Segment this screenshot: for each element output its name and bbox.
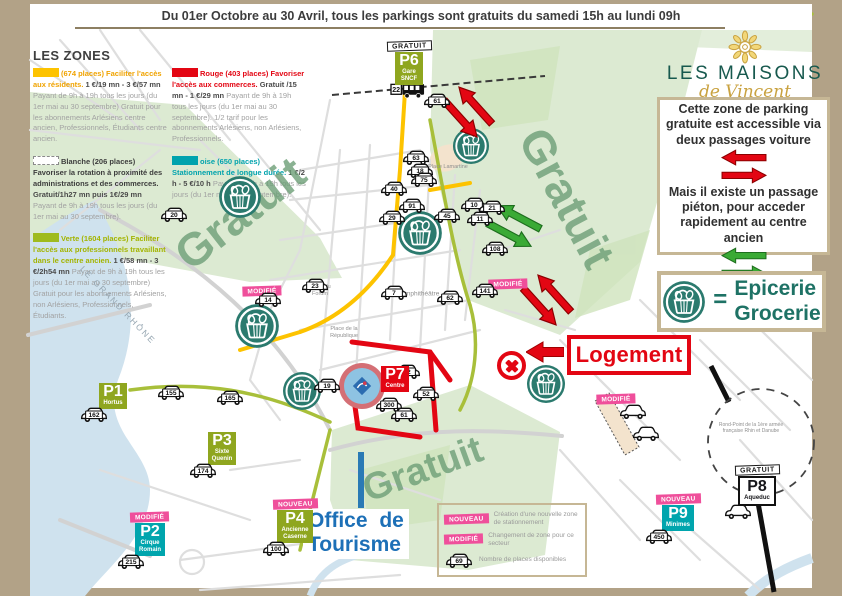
parking-map-page: Du 01er Octobre au 30 Avril, tous les pa… [0,0,842,596]
svg-text:23: 23 [311,283,319,290]
svg-text:45: 45 [443,213,451,220]
svg-text:162: 162 [88,412,99,419]
svg-text:19: 19 [323,383,331,390]
svg-text:7: 7 [392,290,396,297]
parking-marker-p6: GRATUITP6GareSNCF [383,34,435,85]
svg-text:155: 155 [165,390,176,397]
grocery-basket-icon [234,303,280,349]
street-label: LE GRAND RHÔNE [78,264,158,346]
svg-text:91: 91 [408,203,416,210]
svg-text:450: 450 [653,534,664,541]
car-count-badge: 61 [389,406,419,423]
car-count-badge: 40 [379,180,409,197]
car-count-badge: 11 [465,210,495,227]
car-count-badge: 23 [300,277,330,294]
car-count-badge: 108 [480,240,510,257]
car-count-badge [618,403,648,420]
svg-text:40: 40 [390,186,398,193]
svg-text:108: 108 [489,246,500,253]
parking-marker-p9: NOUVEAUP9Minimes 450 [652,487,704,545]
car-count-badge: 7 [379,284,409,301]
car-count-badge: 29 [377,209,407,226]
street-label: Rond-Point de la 1ère armée française Rh… [718,422,784,435]
car-count-badge [631,425,661,442]
car-count-badge: 20 [159,206,189,223]
parking-marker-p4: NOUVEAUP4AncienneCaserne 100 [269,492,321,557]
car-count-badge: 61 [422,92,452,109]
svg-text:14: 14 [264,297,272,304]
svg-text:62: 62 [446,295,454,302]
car-count-badge: 165 [215,389,245,406]
car-count-badge: 155 [156,384,186,401]
svg-text:52: 52 [422,391,430,398]
svg-text:61: 61 [400,412,408,419]
car-count-badge: 62 [435,289,465,306]
gratuit-zone-label: Gratuit [357,428,489,511]
svg-text:29: 29 [388,215,396,222]
car-count-badge: 75 [409,171,439,188]
parking-marker-p2: MODIFIÉP2CirqueRomain 215 [124,505,176,570]
parking-marker-p3: P3SixteQuenin 174 [196,432,248,479]
svg-text:100: 100 [270,546,281,553]
map-markers-layer: GratuitGratuitGratuitLE GRAND RHÔNEPlace… [0,0,842,596]
parking-marker-p8: GRATUITP8Aqueduc [731,458,783,520]
svg-text:215: 215 [125,559,136,566]
grocery-basket-icon [218,175,262,219]
svg-text:63: 63 [412,155,420,162]
svg-text:20: 20 [170,212,178,219]
svg-text:11: 11 [477,216,484,223]
svg-text:22: 22 [392,86,400,94]
svg-text:141: 141 [479,288,490,295]
car-count-badge: 14 [253,291,283,308]
red-double-arrow-icon [435,79,500,145]
svg-text:174: 174 [197,468,208,475]
car-count-badge: 45 [432,207,462,224]
svg-text:165: 165 [224,395,235,402]
parking-marker-p1: P1Hortus 162 [87,383,139,423]
car-count-badge: 19 [312,377,342,394]
svg-text:75: 75 [420,177,428,184]
street-label: Place de la République [324,326,364,340]
grocery-basket-icon [526,364,566,404]
svg-text:61: 61 [433,98,441,105]
parking-marker-p7: P7Centre [369,366,421,392]
car-count-badge: 141 [470,282,500,299]
